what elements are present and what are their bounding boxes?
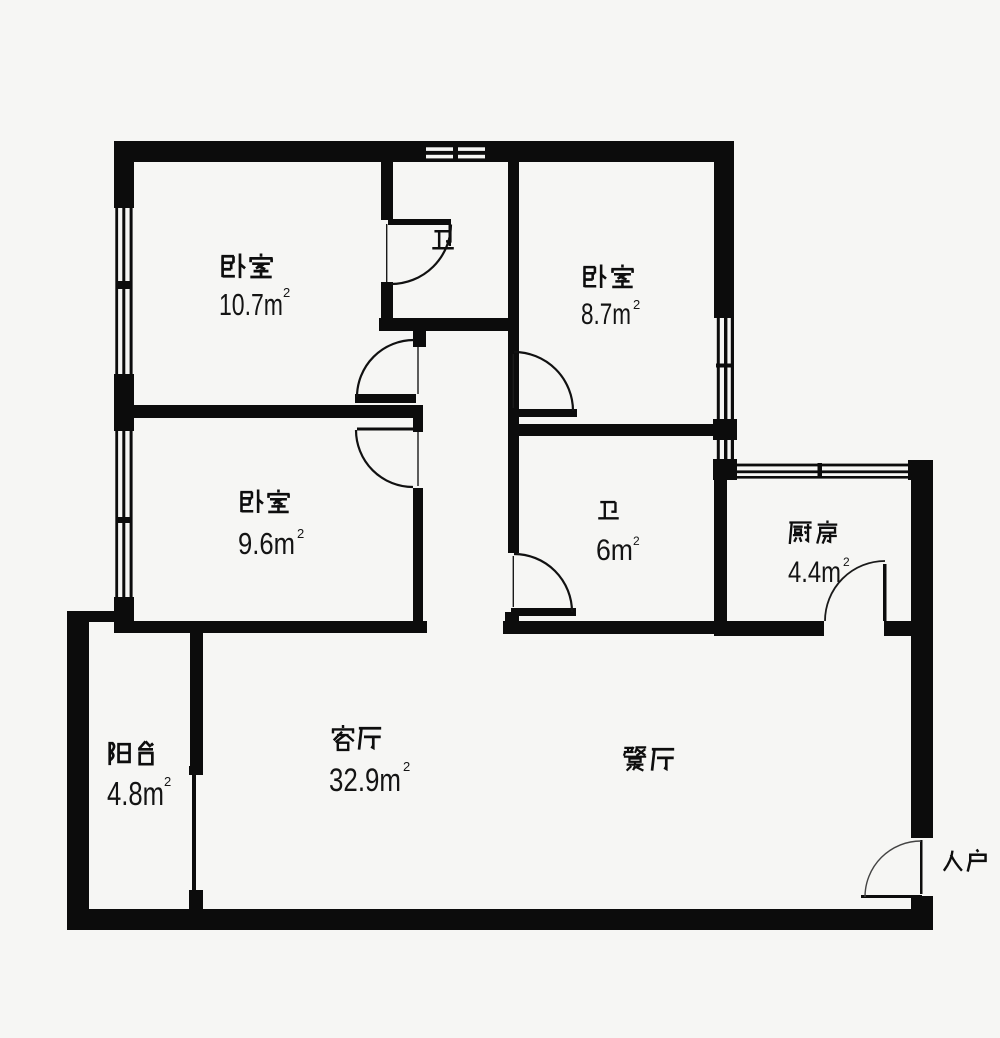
svg-text:4.8m: 4.8m xyxy=(107,775,164,812)
svg-text:2: 2 xyxy=(403,759,410,774)
svg-text:2: 2 xyxy=(633,297,640,312)
svg-text:2: 2 xyxy=(283,285,290,300)
svg-text:2: 2 xyxy=(164,774,171,789)
svg-text:2: 2 xyxy=(843,555,850,569)
svg-text:4.4m: 4.4m xyxy=(788,556,841,589)
svg-text:10.7m: 10.7m xyxy=(219,287,283,322)
svg-text:6m: 6m xyxy=(596,534,633,567)
svg-text:8.7m: 8.7m xyxy=(581,298,631,331)
svg-text:32.9m: 32.9m xyxy=(329,762,401,798)
svg-text:9.6m: 9.6m xyxy=(238,526,295,561)
svg-text:2: 2 xyxy=(297,526,304,541)
svg-text:2: 2 xyxy=(633,534,640,548)
